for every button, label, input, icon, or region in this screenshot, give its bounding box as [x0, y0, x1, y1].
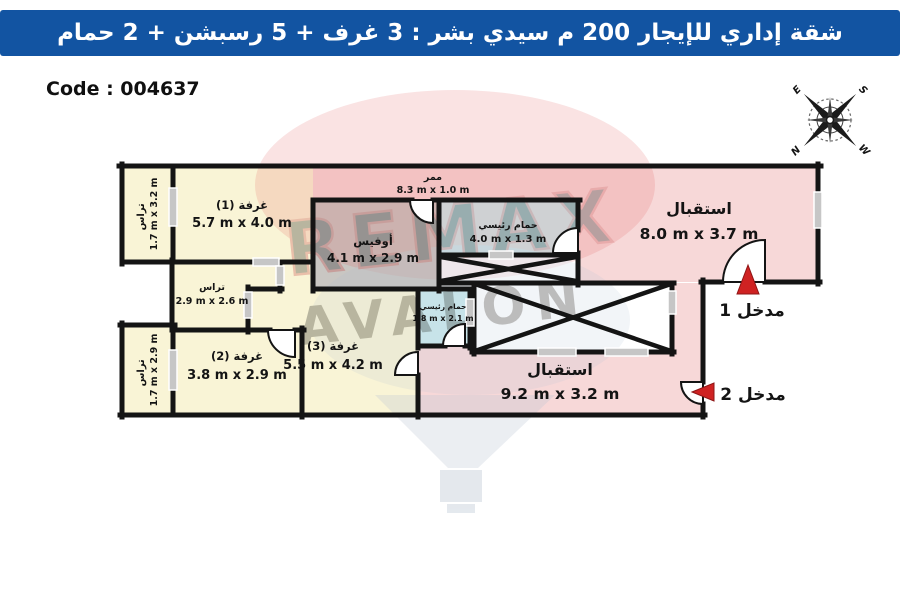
reception-2-label: استقبال	[527, 360, 593, 379]
compass-n: N	[790, 144, 804, 158]
entrance-1-label: مدخل 1	[719, 301, 785, 321]
entrances: مدخل 1 مدخل 2	[692, 265, 786, 405]
bath-2-label: حمام رئيسي	[420, 302, 467, 311]
floor-plan: REMAX AVALON	[0, 0, 900, 600]
room-terrace-1	[122, 166, 173, 262]
office-dims: 4.1 m x 2.9 m	[327, 251, 419, 265]
bath-2-dims: 1.8 m x 2.1 m	[412, 314, 473, 323]
corridor-label: ممر	[423, 172, 442, 183]
bath-1-dims: 4.0 m x 1.3 m	[470, 234, 547, 245]
window	[253, 258, 279, 266]
reception-2-dims: 9.2 m x 3.2 m	[501, 385, 620, 403]
room-terrace-3	[122, 325, 173, 415]
vent	[489, 251, 513, 259]
room-3-dims: 5.5 m x 4.2 m	[283, 358, 383, 373]
window	[814, 192, 822, 228]
corridor-dims: 8.3 m x 1.0 m	[397, 185, 470, 196]
terrace-2-dims: 2.9 m x 2.6 m	[176, 296, 249, 307]
window	[276, 266, 284, 285]
window	[169, 350, 177, 390]
room-2-label: غرفة (2)	[211, 349, 263, 363]
page: { "header": { "title": "شقة إداري للإيجا…	[0, 0, 900, 600]
compass-s: S	[856, 84, 869, 97]
watermark-balloon-basket-base	[447, 504, 475, 513]
vent	[538, 348, 576, 356]
room-1-dims: 5.7 m x 4.0 m	[192, 216, 292, 231]
office-label: أوفيس	[353, 233, 393, 249]
vent	[668, 291, 676, 314]
vent	[605, 348, 648, 356]
compass-w: W	[856, 143, 872, 159]
compass-e: E	[791, 84, 804, 97]
watermark-balloon-basket	[440, 470, 482, 502]
watermark-balloon-cone	[375, 395, 555, 468]
room-3-label: غرفة (3)	[307, 339, 359, 353]
room-1-label: غرفة (1)	[216, 198, 268, 212]
entrance-2-label: مدخل 2	[720, 385, 786, 405]
reception-1-dims: 8.0 m x 3.7 m	[640, 225, 759, 243]
reception-1-label: استقبال	[666, 199, 732, 218]
window	[169, 188, 177, 226]
compass-icon: E S N W	[778, 68, 883, 173]
room-2-dims: 3.8 m x 2.9 m	[187, 368, 287, 383]
terrace-2-label: تراس	[199, 282, 225, 293]
bath-1-label: حمام رئيسي	[478, 220, 537, 231]
